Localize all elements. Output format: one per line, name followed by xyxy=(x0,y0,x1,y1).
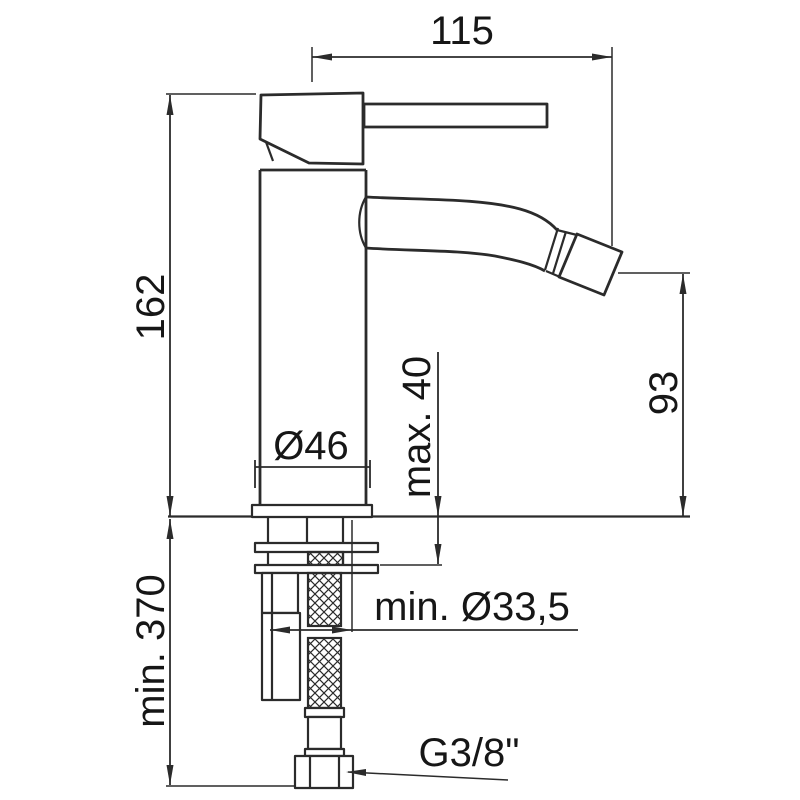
thread-label: G3/8" xyxy=(419,731,520,775)
technical-drawing: 115 162 93 max. 40 Ø46 min. 370 min xyxy=(0,0,800,800)
mounting-sleeve xyxy=(262,573,298,613)
hose-nut xyxy=(295,756,353,788)
dim-min370-label: min. 370 xyxy=(129,574,173,727)
dim-162-label: 162 xyxy=(129,274,173,341)
hose-ferrule-collar xyxy=(305,708,344,717)
mounting-plate-lower xyxy=(255,565,378,573)
lever-handle xyxy=(364,104,547,127)
hose-braid-upper xyxy=(308,573,341,626)
hose-between-plates xyxy=(308,552,343,565)
dim-93-arrow-top xyxy=(680,274,687,294)
dim-162-arrow-top xyxy=(167,95,174,115)
dim-d46-label: Ø46 xyxy=(273,424,349,468)
dim-d335-arrow-right xyxy=(332,627,352,634)
spout-top-edge xyxy=(366,197,557,230)
dim-93-arrow-bottom xyxy=(680,496,687,516)
base-flange xyxy=(252,505,372,517)
dim-115-arrow-right xyxy=(592,54,612,61)
supply-hose xyxy=(295,573,353,788)
hose-braid-lower xyxy=(308,638,341,708)
dim-min370-arrow-top xyxy=(167,519,174,539)
dim-115-arrow-left xyxy=(312,54,332,61)
mounting-stud xyxy=(262,613,300,700)
dim-max40-arrow-bottom xyxy=(435,544,442,564)
dimension-annotations: 115 162 93 max. 40 Ø46 min. 370 min xyxy=(129,9,690,786)
spout-bottom-edge xyxy=(366,248,545,271)
hose-ferrule-body xyxy=(308,717,341,749)
dim-115-label: 115 xyxy=(430,9,494,53)
dim-162-arrow-bottom xyxy=(167,496,174,516)
dim-93-label: 93 xyxy=(642,371,686,416)
dim-min370-arrow-bottom xyxy=(167,765,174,785)
drawing-canvas: 115 162 93 max. 40 Ø46 min. 370 min xyxy=(0,0,800,800)
mounting-plate-upper xyxy=(255,543,378,552)
faucet-head xyxy=(260,93,363,164)
dim-d335-label: min. Ø33,5 xyxy=(374,585,570,629)
dim-max40-label: max. 40 xyxy=(395,356,439,498)
threaded-shank xyxy=(268,517,343,543)
